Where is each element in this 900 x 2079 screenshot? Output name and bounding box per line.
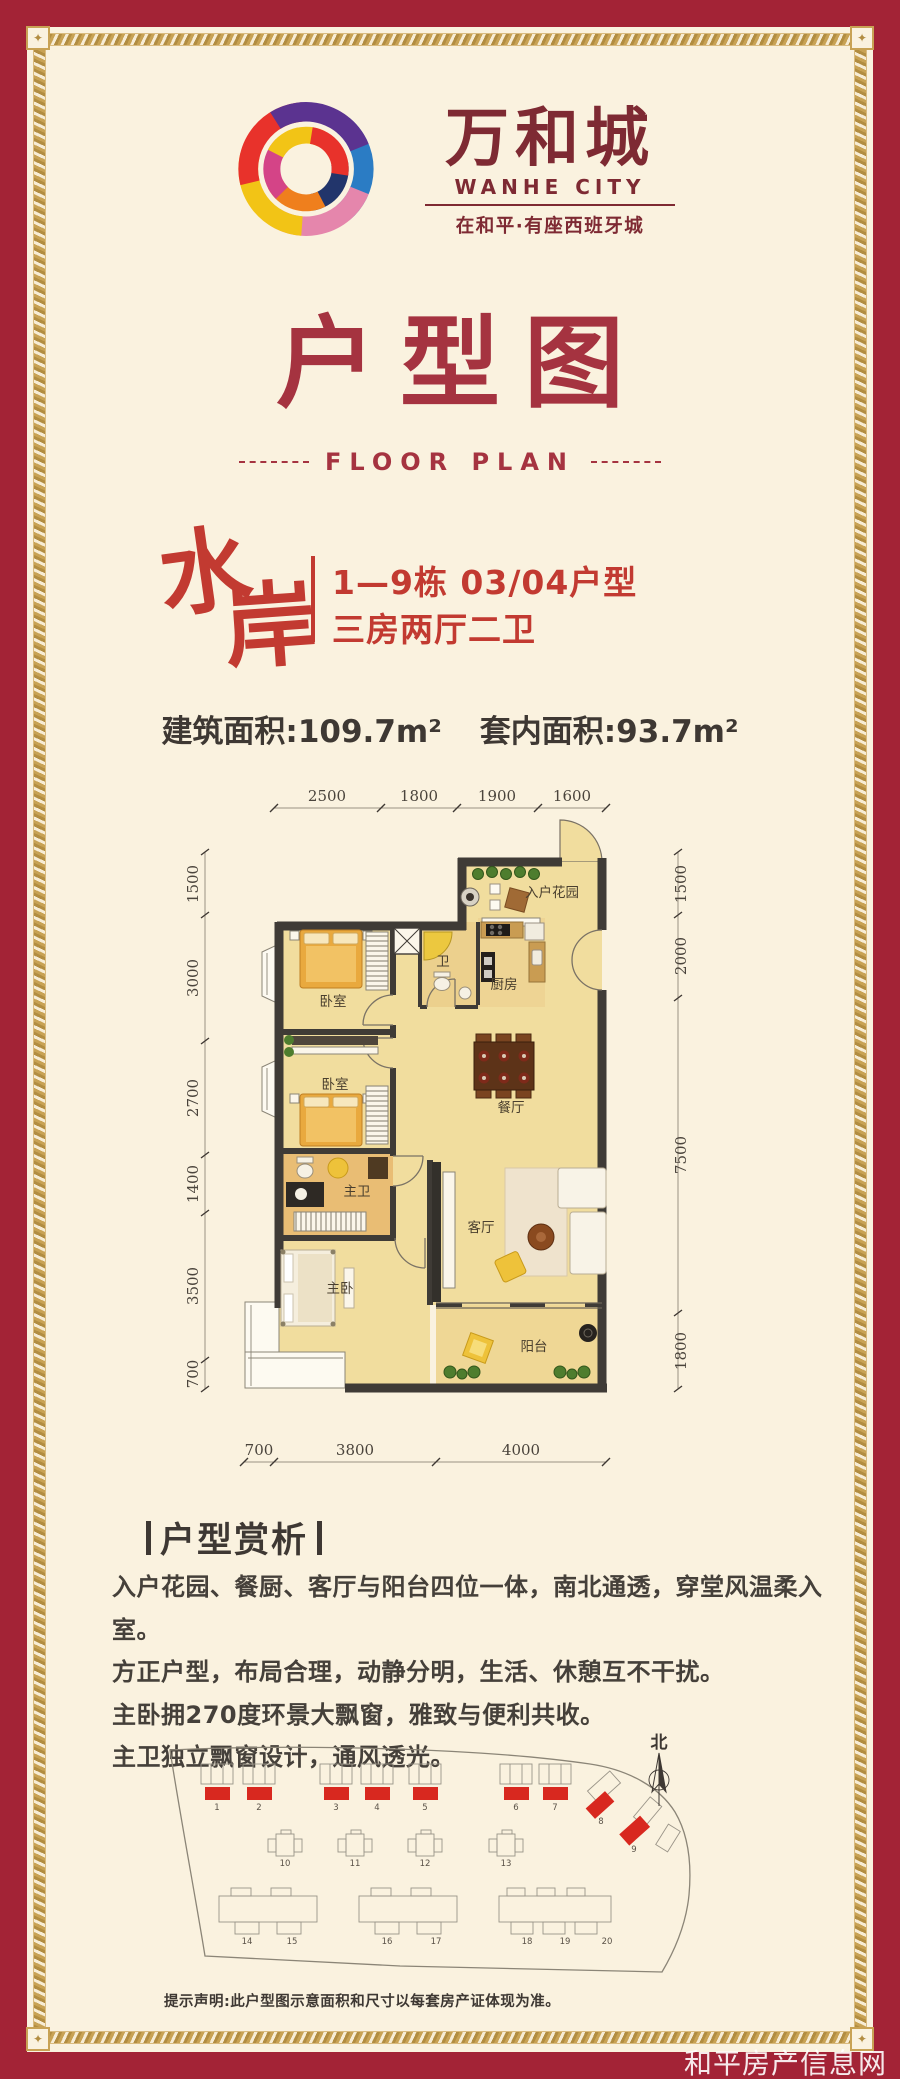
dim-label: 4000 <box>502 1441 540 1459</box>
gold-border-top <box>33 33 867 46</box>
duct-shaft <box>394 928 420 954</box>
building-number: 4 <box>374 1803 379 1813</box>
site-row3-numbers: 14 15 16 17 18 19 20 <box>242 1937 613 1947</box>
disclaimer-text: 提示声明:此户型图示意面积和尺寸以每套房产证体现为准。 <box>164 1990 560 2011</box>
site-row2-outlines <box>268 1830 523 1856</box>
room-label-kitchen: 厨房 <box>491 977 518 993</box>
dim-label: 3000 <box>184 959 202 997</box>
dim-label: 700 <box>245 1441 274 1459</box>
building-number: 13 <box>501 1859 512 1869</box>
gold-corner-ornament: ✦ <box>850 26 874 50</box>
wanhe-city-rosette-logo-icon <box>222 78 390 260</box>
building-number: 3 <box>333 1803 338 1813</box>
room-label-bedroom2: 卧室 <box>322 1076 349 1093</box>
site-row3-outlines <box>219 1888 611 1934</box>
building-number: 17 <box>431 1937 442 1947</box>
page-subtitle-row: FLOOR PLAN <box>0 448 900 476</box>
analysis-heading-row: 户型赏析 <box>146 1512 322 1563</box>
analysis-line: 入户花园、餐厨、客厅与阳台四位一体，南北通透，穿堂风温柔入室。 <box>112 1566 828 1651</box>
heading-bar <box>317 1521 322 1555</box>
room-label-master-bath: 主卫 <box>344 1184 371 1200</box>
room-label-bath: 卫 <box>436 954 450 970</box>
dim-label: 7500 <box>672 1136 690 1174</box>
building-number: 14 <box>242 1937 253 1947</box>
brand-block: 万和城 WANHE CITY 在和平·有座西班牙城 <box>425 106 675 238</box>
building-number: 9 <box>631 1845 636 1855</box>
bedroom1-furniture <box>290 930 388 990</box>
dining-set <box>474 1034 534 1098</box>
room-label-bedroom1: 卧室 <box>320 993 347 1010</box>
dim-label: 3800 <box>336 1441 374 1459</box>
building-number: 16 <box>382 1937 393 1947</box>
siteplan-drawing: 1 2 3 4 5 6 7 8 9 10 11 12 13 <box>140 1718 820 1990</box>
gold-corner-ornament: ✦ <box>26 2027 50 2051</box>
gold-corner-ornament: ✦ <box>26 26 50 50</box>
dim-label: 2500 <box>308 787 346 805</box>
dim-label: 1500 <box>184 865 202 903</box>
north-compass-icon: 北 <box>649 1733 669 1806</box>
building-number: 2 <box>256 1803 261 1813</box>
building-number: 1 <box>214 1803 219 1813</box>
analysis-heading: 户型赏析 <box>160 1512 308 1563</box>
room-label-balcony: 阳台 <box>521 1339 548 1355</box>
dim-label: 3500 <box>184 1267 202 1305</box>
unit-block-line: 1—9栋 03/04户型 <box>332 556 637 604</box>
subtitle-dash-left <box>239 461 309 463</box>
dim-label: 2700 <box>184 1079 202 1117</box>
building-number: 11 <box>350 1859 361 1869</box>
area-row: 建筑面积:109.7m² 套内面积:93.7m² <box>0 706 900 751</box>
site-row1-numbers: 1 2 3 4 5 6 7 8 9 <box>214 1803 636 1855</box>
building-number: 10 <box>280 1859 291 1869</box>
floorplan-poster: ✦ ✦ ✦ ✦ 万和城 WANHE CITY 在和平·有座西班牙城 <box>0 0 900 2079</box>
analysis-line: 方正户型，布局合理，动静分明，生活、休憩互不干扰。 <box>112 1651 828 1694</box>
building-number: 18 <box>522 1937 533 1947</box>
brand-name-en: WANHE CITY <box>425 175 675 199</box>
dim-label: 2000 <box>672 937 690 975</box>
dim-label: 1400 <box>184 1165 202 1203</box>
floorplan-drawing: 2500 1800 1900 1600 700 3800 4000 1500 3… <box>130 770 790 1482</box>
north-label: 北 <box>651 1733 668 1753</box>
building-number: 5 <box>422 1803 427 1813</box>
brand-rule <box>425 204 675 206</box>
brand-tagline: 在和平·有座西班牙城 <box>425 212 675 238</box>
brand-name-cn: 万和城 <box>425 106 675 173</box>
site-highlighted-buildings <box>205 1787 650 1846</box>
building-number: 7 <box>552 1803 557 1813</box>
building-number: 12 <box>420 1859 431 1869</box>
unit-divider <box>311 556 315 642</box>
area-built: 建筑面积:109.7m² <box>161 706 441 751</box>
page-title: 户型图 <box>0 308 900 418</box>
room-label-dining: 餐厅 <box>498 1100 525 1116</box>
watermark-text: 和平房产信息网 <box>684 2042 887 2079</box>
heading-bar <box>146 1521 151 1555</box>
subtitle-dash-right <box>591 461 661 463</box>
room-label-living: 客厅 <box>468 1219 495 1236</box>
series-calligraphy: 岸 <box>219 549 320 688</box>
dim-label: 1600 <box>553 787 591 805</box>
dim-label: 1800 <box>672 1332 690 1370</box>
dim-label: 1800 <box>400 787 438 805</box>
bedroom2-furniture <box>290 1086 388 1146</box>
area-inner: 套内面积:93.7m² <box>480 706 739 751</box>
building-number: 15 <box>287 1937 298 1947</box>
page-subtitle: FLOOR PLAN <box>325 448 575 476</box>
building-number: 19 <box>560 1937 571 1947</box>
room-label-master-bedroom: 主卧 <box>327 1281 354 1297</box>
dim-label: 1500 <box>672 865 690 903</box>
unit-layout-line: 三房两厅二卫 <box>332 603 536 651</box>
building-number: 8 <box>598 1817 603 1827</box>
building-number: 6 <box>513 1803 518 1813</box>
building-number: 20 <box>602 1937 613 1947</box>
site-row2-numbers: 10 11 12 13 <box>280 1859 512 1869</box>
dim-label: 1900 <box>478 787 516 805</box>
room-label-entry-garden: 入户花园 <box>525 884 579 901</box>
dim-label: 700 <box>184 1360 202 1389</box>
